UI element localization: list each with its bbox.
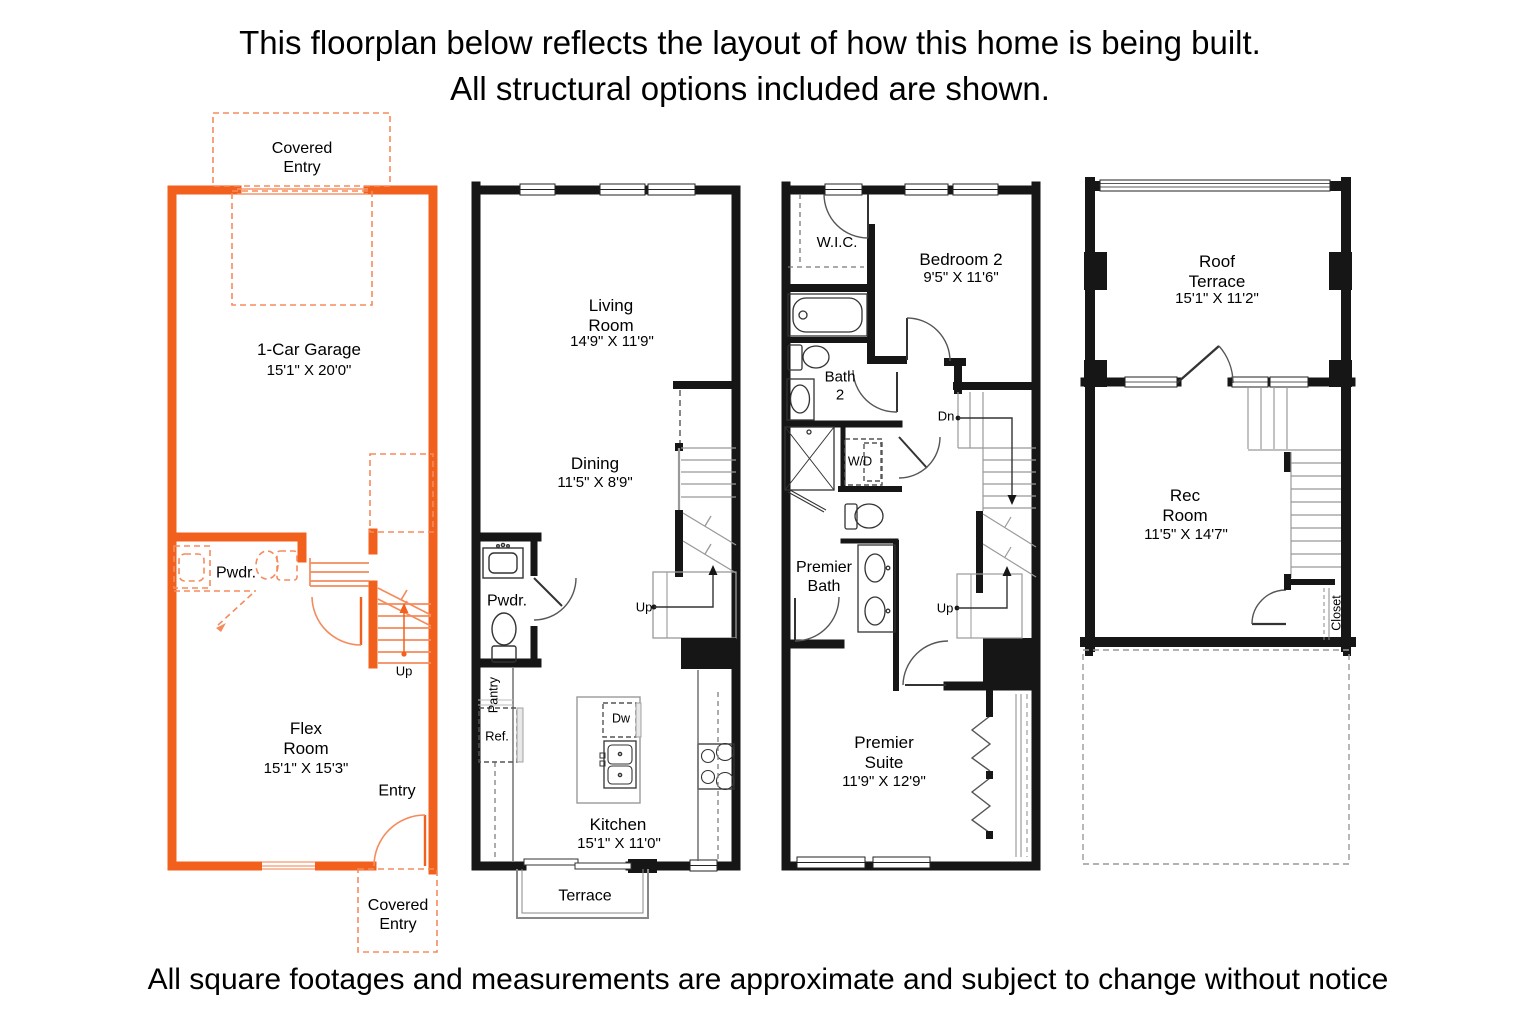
wd-label: W/D: [848, 455, 872, 470]
dining-label: Dining: [571, 454, 619, 474]
rec-room-label: Rec Room: [1162, 486, 1207, 526]
wall-mass: [983, 638, 1036, 688]
disclaimer-text: All square footages and measurements are…: [0, 963, 1536, 997]
kitchen-dims: 15'1" X 11'0": [577, 835, 661, 853]
floor2-windows: [520, 184, 717, 871]
covered-entry-top-label: Covered Entry: [272, 140, 332, 178]
floor4-closet: [1324, 588, 1329, 640]
floor2-walls: [476, 186, 736, 866]
terrace-label: Terrace: [558, 888, 611, 907]
wic-label: W.I.C.: [817, 234, 858, 252]
garage-dims: 15'1" X 20'0": [267, 362, 352, 380]
rec-room-dims: 11'5" X 14'7": [1144, 526, 1228, 544]
floor2-stairs: [652, 390, 737, 669]
pwdr-label-floor2: Pwdr.: [487, 593, 527, 612]
floor4-pilasters: [1084, 252, 1352, 656]
premier-suite-label: Premier Suite: [854, 733, 914, 773]
floorplan-sheet: This floorplan below reflects the layout…: [0, 0, 1536, 1011]
up-label-floor1: Up: [396, 663, 413, 678]
garage-label: 1-Car Garage: [257, 340, 361, 360]
floor3-interior-walls: [786, 228, 1036, 688]
dn-label: Dn: [938, 408, 955, 423]
floor3-stairs: [955, 392, 1036, 638]
title-line1: This floorplan below reflects the layout…: [0, 20, 1500, 66]
floorplan-drawing: [0, 0, 1536, 1011]
roof-terrace-dims: 15'1" X 11'2": [1175, 290, 1259, 308]
pwdr-label-floor1: Pwdr.: [216, 565, 256, 584]
roof-terrace-label: Roof Terrace: [1189, 252, 1246, 292]
swing-arrowhead: [216, 623, 226, 632]
bedroom2-label: Bedroom 2: [919, 250, 1002, 270]
roof-outline: [1083, 650, 1349, 864]
floor1-up-arrow: [400, 603, 409, 657]
closet-label: Closet: [1330, 595, 1345, 630]
premier-suite-dims: 11'9" X 12'9": [842, 773, 926, 791]
living-room-label: Living Room: [588, 296, 633, 336]
floor2-plan: [476, 184, 736, 918]
living-room-dims: 14'9" X 11'9": [570, 333, 654, 351]
entry-label: Entry: [378, 783, 415, 802]
floor4-stairs: [1248, 387, 1341, 590]
page-title: This floorplan below reflects the layout…: [0, 20, 1500, 112]
flex-room-label: Flex Room: [283, 719, 328, 759]
ref-label: Ref.: [485, 728, 509, 743]
bedroom2-dims: 9'5" X 11'6": [923, 269, 998, 287]
up-label-floor2: Up: [636, 599, 653, 614]
bath2-label: Bath 2: [825, 368, 856, 403]
pwdr-door-leaf: [534, 578, 562, 606]
premier-bath-label: Premier Bath: [796, 559, 852, 597]
dw-label: Dw: [612, 712, 630, 727]
dining-dims: 11'5" X 8'9": [557, 474, 632, 492]
pantry-label: Pantry: [487, 677, 502, 713]
floor3-suite-closet: [972, 690, 1027, 857]
floor1-plan: [172, 113, 437, 952]
title-line2: All structural options included are show…: [0, 66, 1500, 112]
up-label-floor3: Up: [937, 600, 954, 615]
covered-entry-bottom-label: Covered Entry: [368, 897, 428, 935]
flex-room-dims: 15'1" X 15'3": [264, 760, 349, 778]
kitchen-label: Kitchen: [590, 815, 647, 835]
